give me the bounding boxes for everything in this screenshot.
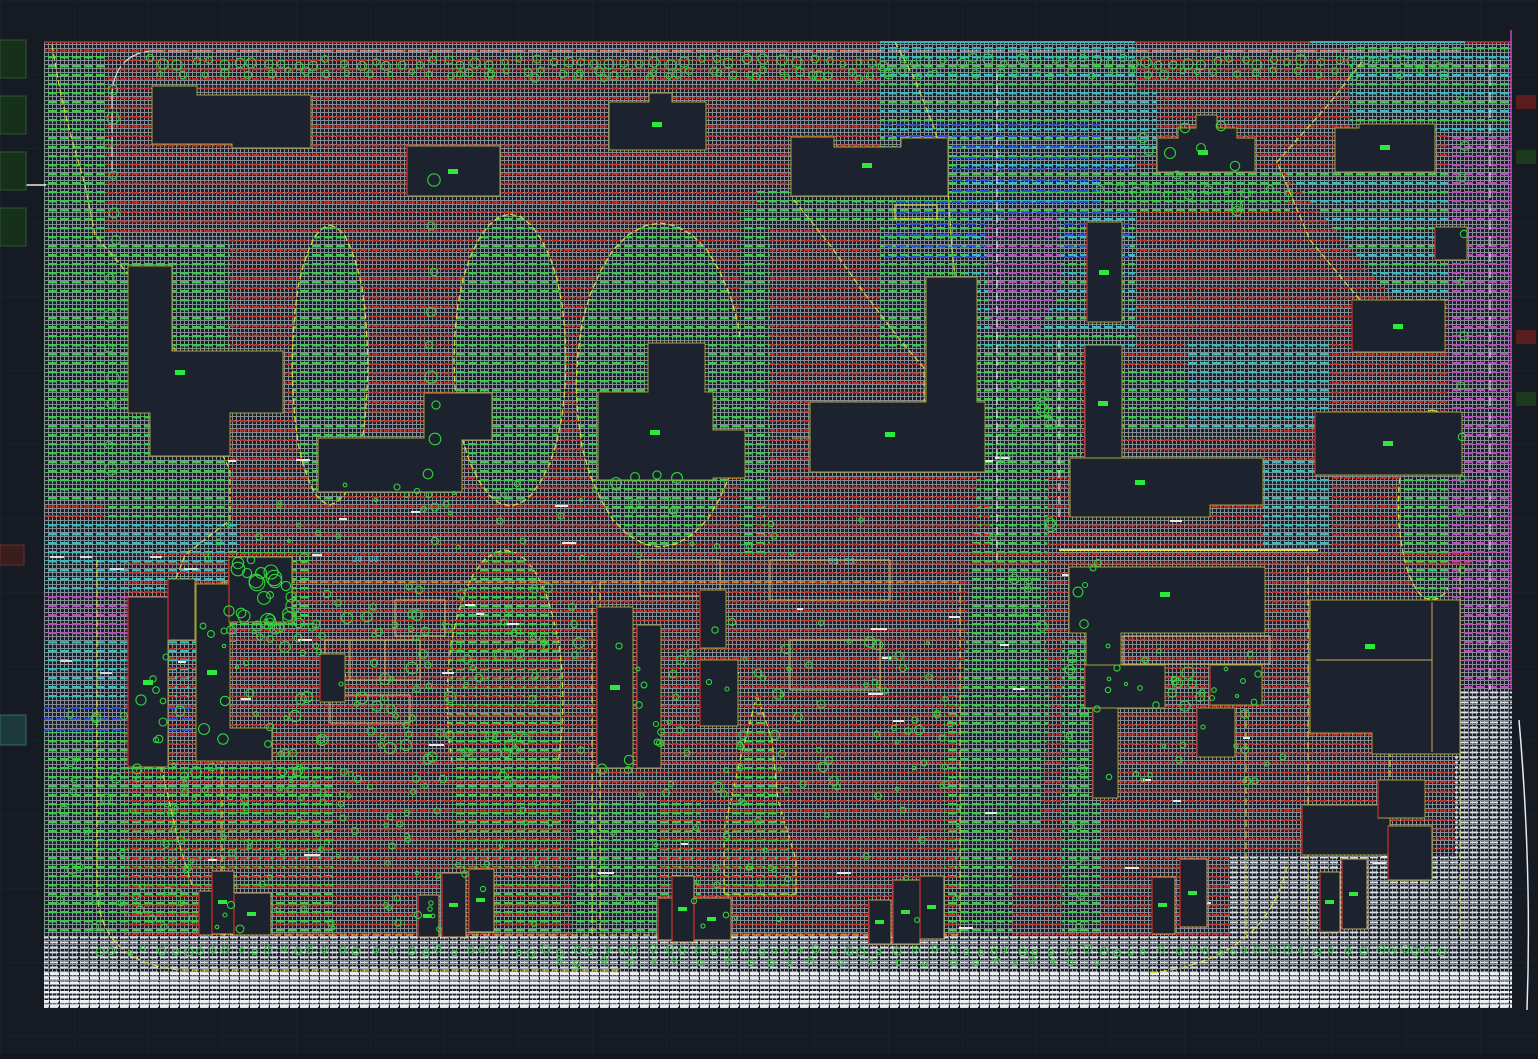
svg-text:30 00: 30 00 [352, 555, 379, 565]
svg-text:03 33: 03 33 [828, 557, 855, 567]
